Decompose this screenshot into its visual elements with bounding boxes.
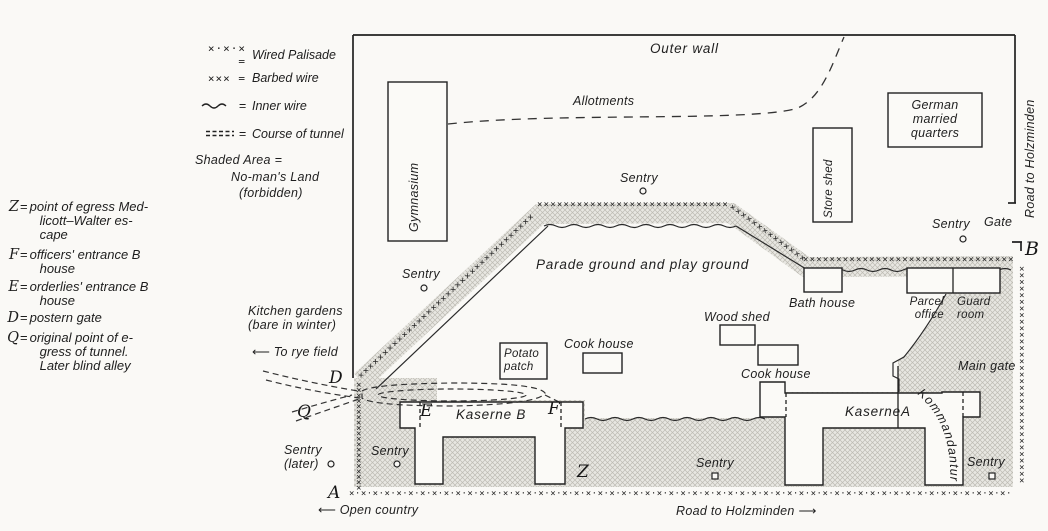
gymnasium-label: Gymnasium: [407, 92, 421, 232]
point-f-letter: F: [548, 399, 560, 419]
legend-key-d: D= postern gate: [5, 311, 102, 327]
legend-key-f: F= officers' entrance Bhouse: [5, 248, 140, 276]
to-rye-field-label: ⟵ To rye field: [252, 345, 338, 359]
sentry-marker: [712, 473, 718, 479]
sentry-marker: [328, 461, 334, 467]
kitchen-gardens-label: Kitchen gardens (bare in winter): [248, 304, 343, 332]
left-arrow-icon: ⟵: [318, 503, 336, 517]
bath-house-label: Bath house: [789, 296, 855, 310]
svg-text:××××××××××××××: ××××××××××××××: [727, 202, 808, 265]
bath-house-building: [804, 268, 842, 292]
main-gate-label: Main gate: [958, 359, 1016, 373]
road-to-holzminden-right-label: Road to Holzminden: [1023, 93, 1037, 218]
cook-house-1-building: [583, 353, 622, 373]
sentry-marker: [989, 473, 995, 479]
kaserne-a-label: Kaserne: [845, 404, 901, 419]
sentry-label: Sentry: [402, 267, 440, 281]
parcel-office-label: Parcel office: [904, 296, 944, 322]
sentry-label: Sentry: [620, 171, 658, 185]
sentry-later-label: Sentry (later): [284, 443, 322, 471]
left-arrow-icon: ⟵: [252, 345, 270, 359]
sentry-marker: [421, 285, 427, 291]
point-e-letter: E: [420, 401, 432, 421]
wood-shed-label: Wood shed: [704, 310, 770, 324]
kaserne-a-letter-label: A: [901, 404, 911, 419]
gate-label: Gate: [984, 215, 1012, 229]
barbed-wire-symbol: ××× =: [194, 72, 246, 85]
kaserne-b-label: Kaserne B: [456, 407, 526, 422]
svg-text:×××××××××××××××××××××××××××××: ×××××××××××××××××××××××××××××: [537, 200, 729, 210]
legend-shaded-area-line3: (forbidden): [239, 186, 303, 200]
allotments-label: Allotments: [573, 94, 634, 108]
wired-palisade-symbol: ×·×·× =: [194, 42, 246, 68]
road-to-holzminden-bottom-label: Road to Holzminden ⟶: [676, 504, 816, 518]
store-shed-label: Store shed: [823, 133, 836, 218]
cook-house-2-building: [758, 345, 798, 365]
sentry-marker: [640, 188, 646, 194]
german-married-quarters-label: German married quarters: [890, 98, 980, 140]
right-arrow-icon: ⟶: [798, 504, 816, 518]
legend-inner-wire: = Inner wire: [194, 99, 307, 113]
allotments-dashed-line: [448, 37, 844, 124]
svg-text:××××××××××××××××××××××××××××××: ××××××××××××××××××××××××××××××××: [803, 255, 1015, 265]
guard-room-label: Guard room: [957, 296, 997, 322]
legend-key-z: Z= point of egress Med-licott–Walter es-…: [5, 200, 148, 242]
parade-ground-label: Parade ground and play ground: [536, 257, 749, 272]
point-a-letter: A: [328, 483, 340, 503]
point-z-letter: Z: [577, 462, 589, 482]
sentry-label: Sentry: [371, 444, 409, 458]
svg-text:×·×·×·×·×·×·×·×·×·×·×·×·×·×·×·: ×·×·×·×·×·×·×·×·×·×·×·×·×·×·×·×·×·×·×·×·…: [349, 489, 1012, 499]
camp-map-drawing: ×××××××××××××××××××××××××××××××××××× ×××…: [0, 0, 1048, 531]
outer-wall-label: Outer wall: [650, 41, 719, 56]
sentry-marker: [960, 236, 966, 242]
legend-key-e: E= orderlies' entrance Bhouse: [5, 280, 148, 308]
sentry-label: Sentry: [696, 456, 734, 470]
point-d-letter: D: [329, 368, 343, 388]
sentry-label: Sentry: [932, 217, 970, 231]
legend-wired-palisade: ×·×·× = Wired Palisade: [194, 42, 336, 68]
legend-course-of-tunnel: = Course of tunnel: [194, 127, 344, 141]
legend-shaded-area-line2: No-man's Land: [231, 170, 319, 184]
inner-wire-symbol: =: [194, 99, 246, 113]
point-b-letter: B: [1025, 238, 1039, 260]
cook-house-2-label: Cook house: [741, 367, 811, 381]
potato-patch-label: Potato patch: [504, 348, 539, 374]
legend-key-q: Q= original point of e-gress of tunnel.L…: [5, 331, 133, 373]
cook-house-1-label: Cook house: [564, 337, 634, 351]
sentry-marker: [394, 461, 400, 467]
legend-shaded-area-line1: Shaded Area =: [195, 153, 282, 167]
point-q-letter: Q: [297, 402, 311, 422]
sentry-label: Sentry: [967, 455, 1005, 469]
open-country-label: ⟵ Open country: [318, 503, 418, 517]
wood-shed-building: [720, 325, 755, 345]
tunnel-course-symbol: =: [194, 127, 246, 141]
camp-map-page: ×××××××××××××××××××××××××××××××××××× ×××…: [0, 0, 1048, 531]
svg-text:××××××××××××××××××××××××××××××: ×××××××××××××××××××××××××××××××××: [1016, 266, 1026, 484]
legend-barbed-wire: ××× = Barbed wire: [194, 71, 319, 85]
